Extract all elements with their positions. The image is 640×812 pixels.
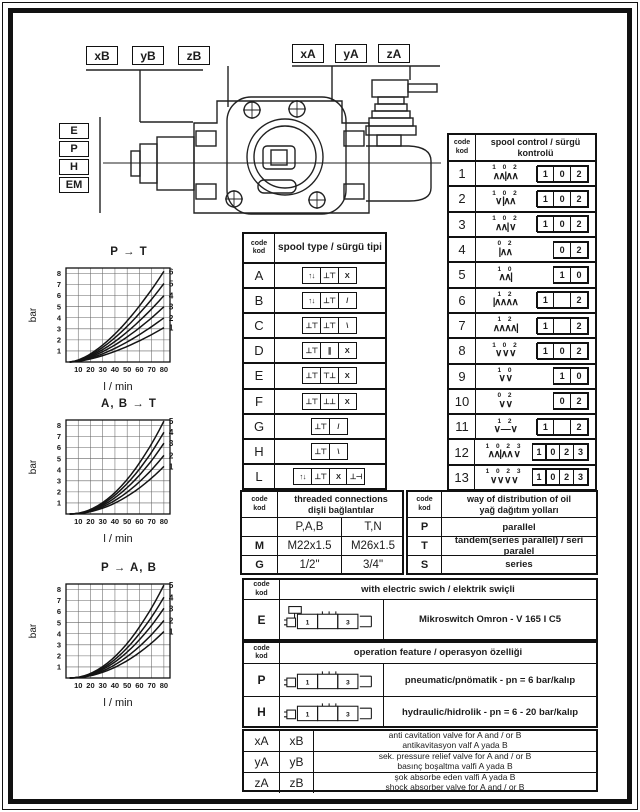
spool-type-row: C⊥⊤⊥⊤\ bbox=[244, 314, 385, 339]
spool-type-symbol: ⊥⊤⊥⊤\ bbox=[275, 314, 385, 337]
spool-control-symbol: 1 0 2 3∨ ∨ ∨ ∨ bbox=[475, 469, 531, 486]
svg-text:80: 80 bbox=[160, 517, 168, 526]
position-boxes: 102 bbox=[537, 190, 589, 208]
svg-text:50: 50 bbox=[123, 681, 131, 690]
spool-control-code: 2 bbox=[449, 187, 476, 210]
position-box: 0 bbox=[545, 444, 560, 460]
port-label-zB: zB bbox=[178, 46, 210, 65]
svg-text:20: 20 bbox=[86, 681, 94, 690]
position-box: 1 bbox=[536, 318, 554, 334]
spool-symbol-cell: ⊥⊤ bbox=[320, 267, 339, 284]
svg-text:bar: bar bbox=[28, 459, 39, 474]
svg-text:3: 3 bbox=[345, 619, 349, 626]
port-label-xA: xA bbox=[292, 44, 324, 63]
code-header: code kod bbox=[244, 643, 280, 664]
spool-symbol-cell: \ bbox=[329, 443, 348, 460]
spool-control-row: 31 0 2∧∧| ∨102 bbox=[449, 213, 595, 238]
svg-text:4: 4 bbox=[57, 313, 62, 322]
svg-text:1: 1 bbox=[57, 347, 61, 356]
svg-text:3: 3 bbox=[345, 711, 349, 718]
svg-text:6: 6 bbox=[57, 291, 61, 300]
svg-text:6: 6 bbox=[57, 607, 61, 616]
svg-text:7: 7 bbox=[57, 432, 61, 441]
spool-control-code: 12 bbox=[449, 440, 475, 463]
spring-detent-symbol: ∨ ∨ bbox=[499, 400, 512, 410]
spool-symbol-cell: X bbox=[338, 393, 357, 410]
svg-text:60: 60 bbox=[135, 681, 143, 690]
operation-feature-table: code kod operation feature / operasyon ö… bbox=[242, 641, 598, 728]
spool-symbol-cell: \ bbox=[338, 317, 357, 334]
spool-type-rows: A↑↓⊥⊤XB↑↓⊥⊤/C⊥⊤⊥⊤\D⊥⊤∥XE⊥⊤⊤⊥XF⊥⊤⊥⊥XG⊥⊤/H… bbox=[244, 264, 385, 488]
chart-plot: 123456781020304050607080barl / min12345 bbox=[22, 580, 198, 708]
spool-control-row: 91 0∨ ∨10 bbox=[449, 365, 595, 390]
spool-symbol-cell: ⊥⊤ bbox=[320, 292, 339, 309]
spool-type-symbol: ⊥⊤⊤⊥X bbox=[275, 364, 385, 387]
position-box: 2 bbox=[559, 444, 574, 460]
spool-control-code: 9 bbox=[449, 365, 476, 388]
position-box: 0 bbox=[553, 166, 571, 182]
spool-control-row: 11 0 2∧∧|∧∧102 bbox=[449, 162, 595, 187]
position-box bbox=[553, 292, 571, 308]
code-header: code kod bbox=[449, 135, 476, 160]
svg-text:20: 20 bbox=[86, 365, 94, 374]
spool-type-code: G bbox=[244, 415, 275, 438]
spool-control-row: 131 0 2 3∨ ∨ ∨ ∨1023 bbox=[449, 466, 595, 489]
spool-type-row: G⊥⊤/ bbox=[244, 415, 385, 440]
svg-text:3: 3 bbox=[57, 640, 61, 649]
spool-type-row: D⊥⊤∥X bbox=[244, 339, 385, 364]
svg-text:80: 80 bbox=[160, 681, 168, 690]
spool-control-code: 6 bbox=[449, 289, 476, 312]
distribution-title: way of distribution of oil yağ dağıtım y… bbox=[442, 492, 596, 518]
threaded-connections-table: code kod threaded connections dişli bağl… bbox=[240, 490, 404, 575]
position-box: 0 bbox=[553, 393, 571, 409]
spool-control-symbol: 0 2∨ ∨ bbox=[476, 393, 534, 410]
option-description: sek. pressure relief valve for A and / o… bbox=[314, 752, 596, 773]
actuation-label-p: P bbox=[59, 141, 89, 157]
svg-text:3: 3 bbox=[169, 604, 174, 613]
spool-type-title: spool type / sürgü tipi bbox=[275, 234, 385, 262]
spool-symbol-cell: ⊤⊥ bbox=[320, 367, 339, 384]
spool-control-symbol: 1 0∨ ∨ bbox=[476, 368, 534, 385]
position-box: 2 bbox=[570, 216, 588, 232]
svg-text:2: 2 bbox=[169, 451, 174, 460]
spool-control-row: 40 2|∧∧02 bbox=[449, 238, 595, 263]
spool-control-row: 100 2∨ ∨02 bbox=[449, 390, 595, 415]
position-box: 1 bbox=[536, 216, 554, 232]
position-boxes: 12 bbox=[537, 418, 589, 436]
position-boxes: 1023 bbox=[532, 468, 589, 486]
spool-type-code: A bbox=[244, 264, 275, 287]
option-code: yB bbox=[280, 752, 314, 773]
spring-detent-symbol: ∨ ∨ ∨ ∨ bbox=[490, 476, 517, 486]
electric-title: with electric swich / elektrik swiçli bbox=[280, 580, 596, 600]
spool-type-symbol: ↑↓⊥⊤X bbox=[275, 264, 385, 287]
spring-detent-symbol: ∨ ∨ ∨ bbox=[495, 349, 515, 359]
position-box: 0 bbox=[570, 368, 588, 384]
spool-control-rows: 11 0 2∧∧|∧∧10221 0 2∨ |∧∧10231 0 2∧∧| ∨1… bbox=[449, 162, 595, 489]
position-box: 0 bbox=[553, 191, 571, 207]
position-boxes: 12 bbox=[537, 291, 589, 309]
svg-text:l / min: l / min bbox=[103, 697, 132, 708]
svg-text:40: 40 bbox=[111, 681, 119, 690]
operation-code: P bbox=[244, 664, 280, 697]
position-boxes: 12 bbox=[537, 317, 589, 335]
position-box: 2 bbox=[570, 393, 588, 409]
svg-text:1: 1 bbox=[305, 711, 309, 718]
svg-text:3: 3 bbox=[57, 324, 61, 333]
svg-text:6: 6 bbox=[169, 267, 174, 276]
spool-symbol-cell: ∥ bbox=[320, 342, 339, 359]
svg-text:l / min: l / min bbox=[103, 381, 132, 392]
svg-text:30: 30 bbox=[99, 365, 107, 374]
svg-text:80: 80 bbox=[160, 365, 168, 374]
valve-symbol-icon: 13 bbox=[284, 697, 380, 727]
spool-type-symbol: ⊥⊤∥X bbox=[275, 339, 385, 362]
svg-text:bar: bar bbox=[28, 623, 39, 638]
spool-symbol-cell: ⊥⊤ bbox=[302, 317, 321, 334]
position-box: 1 bbox=[553, 267, 571, 283]
spool-control-symbol: 0 2|∧∧ bbox=[476, 241, 534, 258]
position-box: 2 bbox=[570, 343, 588, 359]
svg-text:30: 30 bbox=[99, 681, 107, 690]
port-label-yB: yB bbox=[132, 46, 164, 65]
spool-type-code: C bbox=[244, 314, 275, 337]
spool-control-row: 111 2∨ — ∨12 bbox=[449, 415, 595, 440]
svg-text:1: 1 bbox=[57, 663, 61, 672]
hydraulic-valve-datasheet-page: xByBzB xAyAzA EPHEM P → T 12345678102030… bbox=[0, 0, 640, 812]
spring-detent-symbol: ∧∧| ∨ bbox=[495, 223, 515, 233]
spool-symbol-cell: ⊥⊤ bbox=[302, 367, 321, 384]
spool-type-code: D bbox=[244, 339, 275, 362]
spool-control-symbol: 1 0∧∧| bbox=[476, 267, 534, 284]
spool-symbol-cell: / bbox=[329, 418, 348, 435]
spool-type-header: code kod spool type / sürgü tipi bbox=[244, 234, 385, 264]
option-code: xB bbox=[280, 731, 314, 752]
svg-text:2: 2 bbox=[169, 314, 174, 323]
svg-text:4: 4 bbox=[57, 629, 62, 638]
position-box: 2 bbox=[570, 242, 588, 258]
spring-detent-symbol: ∧∧|∧∧ ∨ bbox=[488, 450, 520, 460]
position-box: 2 bbox=[570, 419, 588, 435]
threaded-cell: P,A,B bbox=[278, 518, 342, 537]
spool-control-title: spool control / sürgü kontrolü bbox=[476, 135, 595, 160]
threaded-cell: M26x1.5 bbox=[342, 537, 404, 556]
spool-type-code: L bbox=[244, 465, 275, 488]
svg-text:30: 30 bbox=[99, 517, 107, 526]
svg-text:2: 2 bbox=[169, 616, 174, 625]
spool-control-code: 8 bbox=[449, 339, 476, 362]
operation-description: hydraulic/hidrolik - pn = 6 - 20 bar/kal… bbox=[384, 697, 596, 727]
leader-lines bbox=[140, 66, 410, 122]
actuation-label-h: H bbox=[59, 159, 89, 175]
spool-symbol-cell: ⊥⊤ bbox=[320, 317, 339, 334]
valve-options-table: xA xB anti cavitation valve for A and / … bbox=[242, 729, 598, 792]
spool-symbol-cell: ⊥⊤ bbox=[311, 468, 330, 485]
svg-text:1: 1 bbox=[169, 324, 174, 333]
option-code: yA bbox=[244, 752, 280, 773]
svg-text:4: 4 bbox=[57, 465, 62, 474]
svg-text:10: 10 bbox=[74, 517, 82, 526]
spool-control-code: 1 bbox=[449, 162, 476, 185]
threaded-cell: T,N bbox=[342, 518, 404, 537]
electric-code: E bbox=[244, 600, 280, 639]
svg-text:4: 4 bbox=[169, 292, 174, 301]
spool-type-row: F⊥⊤⊥⊥X bbox=[244, 390, 385, 415]
option-code: zB bbox=[280, 773, 314, 793]
svg-text:8: 8 bbox=[57, 585, 61, 594]
position-box: 2 bbox=[570, 166, 588, 182]
port-label-zA: zA bbox=[378, 44, 410, 63]
position-box: 1 bbox=[536, 292, 554, 308]
svg-text:5: 5 bbox=[57, 618, 61, 627]
operation-description: pneumatic/pnömatik - pn = 6 bar/kalıp bbox=[384, 664, 596, 697]
operation-symbol-cell: 13 bbox=[280, 697, 384, 727]
position-box: 1 bbox=[532, 444, 547, 460]
valve-symbol-icon: 13 bbox=[284, 605, 380, 635]
actuation-label-em: EM bbox=[59, 177, 89, 193]
chart-title: P → T bbox=[22, 246, 198, 258]
operation-title: operation feature / operasyon özelliği bbox=[280, 643, 596, 664]
chart-p-to-ab: P → A, B 123456781020304050607080barl / … bbox=[22, 562, 208, 713]
spool-symbol-cell: ⊥⊤ bbox=[311, 418, 330, 435]
position-box bbox=[553, 318, 571, 334]
spool-symbol-cell: X bbox=[329, 468, 348, 485]
svg-text:1: 1 bbox=[305, 679, 309, 686]
spool-symbol-cell: ⊥⊣ bbox=[346, 468, 365, 485]
spool-symbol-cell: X bbox=[338, 367, 357, 384]
spool-control-row: 121 0 2 3∧∧|∧∧ ∨1023 bbox=[449, 440, 595, 465]
svg-text:20: 20 bbox=[86, 517, 94, 526]
spool-type-table: code kod spool type / sürgü tipi A↑↓⊥⊤XB… bbox=[242, 232, 387, 490]
position-boxes: 10 bbox=[553, 266, 589, 284]
spool-control-row: 81 0 2∨ ∨ ∨102 bbox=[449, 339, 595, 364]
svg-text:2: 2 bbox=[57, 651, 61, 660]
spool-type-symbol: ⊥⊤/ bbox=[275, 415, 385, 438]
operation-symbol-cell: 13 bbox=[280, 664, 384, 697]
code-header: code kod bbox=[408, 492, 442, 518]
option-code: xA bbox=[244, 731, 280, 752]
spool-symbol-cell: ↑↓ bbox=[302, 292, 321, 309]
svg-text:3: 3 bbox=[57, 476, 61, 485]
spool-control-symbol: 1 2|∧∧∧∧ bbox=[476, 292, 534, 309]
svg-text:5: 5 bbox=[169, 581, 174, 590]
chart-title: P → A, B bbox=[22, 562, 198, 574]
svg-text:10: 10 bbox=[74, 365, 82, 374]
svg-text:5: 5 bbox=[169, 417, 174, 426]
spool-control-code: 11 bbox=[449, 415, 476, 438]
chart-plot: 123456781020304050607080barl / min12345 bbox=[22, 416, 198, 544]
position-box: 0 bbox=[553, 343, 571, 359]
spool-control-code: 3 bbox=[449, 213, 476, 236]
spool-control-symbol: 1 0 2∨ |∧∧ bbox=[476, 191, 534, 208]
svg-text:2: 2 bbox=[57, 487, 61, 496]
spool-type-code: F bbox=[244, 390, 275, 413]
distribution-cell: series bbox=[442, 556, 596, 573]
svg-text:bar: bar bbox=[28, 307, 39, 322]
code-header: code kod bbox=[244, 580, 280, 600]
svg-text:7: 7 bbox=[57, 596, 61, 605]
svg-text:2: 2 bbox=[57, 335, 61, 344]
svg-text:10: 10 bbox=[74, 681, 82, 690]
svg-text:4: 4 bbox=[169, 428, 174, 437]
spring-detent-symbol: ∧∧| bbox=[499, 273, 512, 283]
spring-detent-symbol: ∧∧|∧∧ bbox=[493, 172, 518, 182]
svg-text:50: 50 bbox=[123, 365, 131, 374]
actuation-label-e: E bbox=[59, 123, 89, 139]
spool-control-symbol: 1 2∨ — ∨ bbox=[476, 419, 534, 436]
electric-switch-table: code kod with electric swich / elektrik … bbox=[242, 578, 598, 641]
threaded-cell: M22x1.5 bbox=[278, 537, 342, 556]
spool-control-code: 4 bbox=[449, 238, 476, 261]
threaded-code: G bbox=[242, 556, 278, 573]
svg-text:7: 7 bbox=[57, 280, 61, 289]
svg-text:5: 5 bbox=[57, 454, 61, 463]
position-box: 0 bbox=[553, 216, 571, 232]
svg-text:1: 1 bbox=[305, 619, 309, 626]
position-box: 2 bbox=[570, 318, 588, 334]
svg-text:70: 70 bbox=[147, 365, 155, 374]
chart-title: A, B → T bbox=[22, 398, 198, 410]
option-description: şok absorbe eden valfi A yada B shock ab… bbox=[314, 773, 596, 793]
spool-symbol-cell: X bbox=[338, 267, 357, 284]
svg-text:1: 1 bbox=[57, 499, 61, 508]
svg-text:1: 1 bbox=[169, 628, 174, 637]
position-box: 2 bbox=[570, 191, 588, 207]
port-label-xB: xB bbox=[86, 46, 118, 65]
position-box: 0 bbox=[553, 242, 571, 258]
spring-detent-symbol: |∧∧∧∧ bbox=[493, 298, 518, 308]
position-box: 1 bbox=[536, 166, 554, 182]
spool-type-symbol: ↑↓⊥⊤X⊥⊣ bbox=[275, 465, 385, 488]
spool-type-symbol: ⊥⊤\ bbox=[275, 440, 385, 463]
svg-text:8: 8 bbox=[57, 421, 61, 430]
spool-symbol-cell: ⊥⊤ bbox=[302, 393, 321, 410]
electric-description: Mikroswitch Omron - V 165 I C5 bbox=[384, 600, 596, 639]
position-box: 2 bbox=[570, 292, 588, 308]
svg-text:6: 6 bbox=[57, 443, 61, 452]
spring-detent-symbol: ∨ |∧∧ bbox=[495, 197, 515, 207]
position-boxes: 102 bbox=[537, 165, 589, 183]
spool-control-symbol: 1 0 2∧∧|∧∧ bbox=[476, 165, 534, 182]
spring-detent-symbol: ∧∧∧∧| bbox=[493, 324, 518, 334]
spool-control-code: 5 bbox=[449, 263, 476, 286]
position-boxes: 02 bbox=[553, 392, 589, 410]
spool-control-symbol: 1 0 2 3∧∧|∧∧ ∨ bbox=[475, 444, 531, 461]
position-box: 0 bbox=[545, 469, 560, 485]
chart-p-to-t: P → T 123456781020304050607080barl / min… bbox=[22, 246, 208, 397]
threaded-title: threaded connections dişli bağlantılar bbox=[278, 492, 404, 518]
port-labels-left: xByBzB bbox=[86, 46, 210, 65]
spool-symbol-cell: X bbox=[338, 342, 357, 359]
svg-text:40: 40 bbox=[111, 517, 119, 526]
spool-control-code: 13 bbox=[449, 466, 475, 489]
spool-symbol-cell: ⊥⊤ bbox=[311, 443, 330, 460]
position-box: 1 bbox=[536, 419, 554, 435]
position-boxes: 1023 bbox=[532, 443, 589, 461]
distribution-code: P bbox=[408, 518, 442, 537]
spool-type-code: B bbox=[244, 289, 275, 312]
spool-symbol-cell: ↑↓ bbox=[302, 267, 321, 284]
option-code: zA bbox=[244, 773, 280, 793]
valve-symbol-icon: 13 bbox=[284, 665, 380, 695]
connector-stack bbox=[366, 80, 437, 146]
port-labels-right: xAyAzA bbox=[292, 44, 410, 63]
spool-symbol-cell: ⊥⊤ bbox=[302, 342, 321, 359]
svg-text:5: 5 bbox=[169, 279, 174, 288]
position-box bbox=[553, 419, 571, 435]
code-header: code kod bbox=[244, 234, 275, 262]
distribution-cell: tandem(series parallel) / seri paralel bbox=[442, 537, 596, 556]
svg-text:70: 70 bbox=[147, 517, 155, 526]
distribution-code: S bbox=[408, 556, 442, 573]
position-box: 1 bbox=[536, 343, 554, 359]
spool-control-symbol: 1 0 2∧∧| ∨ bbox=[476, 216, 534, 233]
position-box: 1 bbox=[536, 191, 554, 207]
option-description: anti cavitation valve for A and / or B a… bbox=[314, 731, 596, 752]
distribution-code: T bbox=[408, 537, 442, 556]
svg-text:l / min: l / min bbox=[103, 533, 132, 544]
spool-control-code: 10 bbox=[449, 390, 476, 413]
spool-type-row: A↑↓⊥⊤X bbox=[244, 264, 385, 289]
operation-code: H bbox=[244, 697, 280, 727]
threaded-cell: 1/2" bbox=[278, 556, 342, 573]
spring-detent-symbol: ∨ — ∨ bbox=[494, 425, 517, 435]
actuation-labels: EPHEM bbox=[59, 123, 89, 193]
spring-detent-symbol: ∨ ∨ bbox=[499, 374, 512, 384]
spring-detent-symbol: |∧∧ bbox=[499, 248, 512, 258]
position-box: 2 bbox=[559, 469, 574, 485]
port-label-yA: yA bbox=[335, 44, 367, 63]
threaded-code: M bbox=[242, 537, 278, 556]
position-box: 3 bbox=[573, 444, 588, 460]
spool-control-row: 71 2∧∧∧∧|12 bbox=[449, 314, 595, 339]
spool-type-symbol: ↑↓⊥⊤/ bbox=[275, 289, 385, 312]
spool-control-row: 21 0 2∨ |∧∧102 bbox=[449, 187, 595, 212]
position-boxes: 02 bbox=[553, 241, 589, 259]
spool-control-code: 7 bbox=[449, 314, 476, 337]
svg-text:1: 1 bbox=[169, 462, 174, 471]
svg-text:8: 8 bbox=[57, 269, 61, 278]
chart-ab-to-t: A, B → T 123456781020304050607080barl / … bbox=[22, 398, 208, 549]
label-underlines bbox=[86, 66, 440, 70]
position-boxes: 10 bbox=[553, 367, 589, 385]
spool-symbol-cell: ⊥⊥ bbox=[320, 393, 339, 410]
threaded-code bbox=[242, 518, 278, 537]
code-header: code kod bbox=[242, 492, 278, 518]
spool-type-row: L↑↓⊥⊤X⊥⊣ bbox=[244, 465, 385, 488]
spool-control-symbol: 1 2∧∧∧∧| bbox=[476, 317, 534, 334]
svg-text:50: 50 bbox=[123, 517, 131, 526]
position-box: 1 bbox=[532, 469, 547, 485]
spool-type-row: H⊥⊤\ bbox=[244, 440, 385, 465]
spool-type-row: B↑↓⊥⊤/ bbox=[244, 289, 385, 314]
svg-text:3: 3 bbox=[169, 439, 174, 448]
spool-control-row: 61 2|∧∧∧∧12 bbox=[449, 289, 595, 314]
position-box: 3 bbox=[573, 469, 588, 485]
svg-text:3: 3 bbox=[345, 679, 349, 686]
position-box: 0 bbox=[570, 267, 588, 283]
spool-type-symbol: ⊥⊤⊥⊥X bbox=[275, 390, 385, 413]
svg-text:60: 60 bbox=[135, 517, 143, 526]
spool-control-table: code kod spool control / sürgü kontrolü … bbox=[447, 133, 597, 491]
spool-type-row: E⊥⊤⊤⊥X bbox=[244, 364, 385, 389]
svg-text:40: 40 bbox=[111, 365, 119, 374]
svg-text:3: 3 bbox=[169, 303, 174, 312]
spool-type-code: E bbox=[244, 364, 275, 387]
spool-symbol-cell: / bbox=[338, 292, 357, 309]
spool-symbol-cell: ↑↓ bbox=[293, 468, 312, 485]
